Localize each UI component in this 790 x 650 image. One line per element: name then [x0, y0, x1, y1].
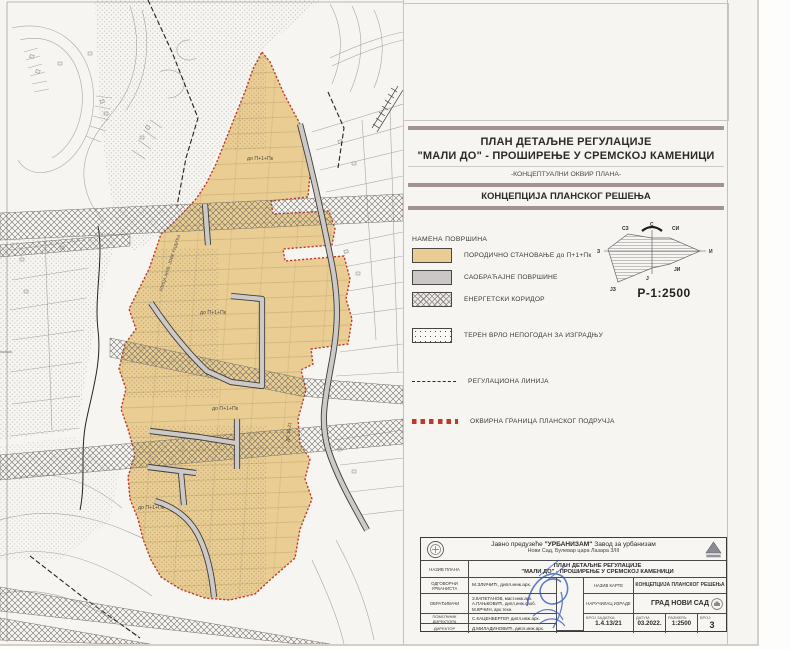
- empty-top-box: [403, 3, 729, 121]
- client-cell: ГРАД НОВИ САД: [634, 594, 726, 614]
- company-prefix: Јавно предузеће: [491, 541, 544, 548]
- sheet-number-cell: БРОЈ: 3: [698, 614, 726, 633]
- regulation-line-swatch: [412, 381, 456, 382]
- legend-item-traffic: САОБРАЋАЈНЕ ПОВРШИНЕ: [412, 270, 558, 285]
- compass-s: Ј: [646, 276, 649, 282]
- map-name-value: КОНЦЕПЦИЈА ПЛАНСКОГ РЕШЕЊА: [634, 578, 726, 594]
- housing-swatch: [412, 248, 452, 263]
- client-label: НАРУЧИЛАЦ ИЗРАДЕ: [584, 594, 634, 614]
- plan-name-label: НАЗИВ ПЛАНА: [421, 561, 469, 578]
- city-coat-of-arms-icon: [711, 598, 723, 610]
- director-name: Д.МИЛАДИНОВИЋ, дипл.инж.арх.: [469, 624, 557, 633]
- plan-title-line2: "МАЛИ ДО" - ПРОШИРЕЊЕ У СРЕМСКОЈ КАМЕНИЦ…: [408, 149, 724, 163]
- signature-column: [557, 578, 584, 631]
- company-stamp-icon: [426, 540, 445, 559]
- plan-map: до П+1+Пк до П+1+Пк до П+1+Пк до П+1+Пк …: [0, 0, 403, 644]
- urbanist-label: ОДГОВОРНИ УРБАНИСТА: [421, 578, 469, 594]
- compass-nw: СЗ: [622, 226, 629, 232]
- title-box: ПЛАН ДЕТАЉНЕ РЕГУЛАЦИЈЕ "МАЛИ ДО" - ПРОШ…: [408, 126, 724, 210]
- zone-label: до П+1+Пк: [247, 156, 274, 162]
- title-block-table: Јавно предузеће "УРБАНИЗАМ" Завод за урб…: [420, 537, 727, 632]
- map-name-label: НАЗИВ КАРТЕ: [584, 578, 634, 594]
- plan-subtitle: -КОНЦЕПТУАЛНИ ОКВИР ПЛАНА-: [408, 166, 724, 183]
- deputy-label: ПОМОЋНИК ДИРЕКТОРА: [421, 614, 469, 624]
- compass-w: З: [597, 249, 600, 255]
- urbanizam-logo-icon: [705, 541, 722, 559]
- legend-item-housing: ПОРОДИЧНО СТАНОВАЊЕ до П+1+Пк: [412, 248, 591, 263]
- compass-ne: СИ: [672, 226, 680, 232]
- legend-item-unsuitable: ТЕРЕН ВРЛО НЕПОГОДАН ЗА ИЗГРАДЊУ: [412, 328, 603, 343]
- plan-name-cell: ПЛАН ДЕТАЉНЕ РЕГУЛАЦИЈЕ "МАЛИ ДО" - ПРОШ…: [469, 561, 726, 578]
- company-name: "УРБАНИЗАМ": [545, 541, 593, 548]
- map-scale: Р-1:2500: [614, 286, 714, 300]
- plan-boundary-swatch: [412, 419, 458, 424]
- author-3: М.КРЧИН, арх.техн.: [472, 607, 556, 613]
- legend-item-energy: ЕНЕРГЕТСКИ КОРИДОР: [412, 292, 545, 307]
- energy-corridor-swatch: [412, 292, 452, 307]
- sheet-number: 3: [698, 620, 726, 630]
- plan-title: ПЛАН ДЕТАЉНЕ РЕГУЛАЦИЈЕ "МАЛИ ДО" - ПРОШ…: [408, 130, 724, 166]
- zone-label: до П+1+Пк: [200, 310, 227, 316]
- traffic-swatch: [412, 270, 452, 285]
- task-number: 1.4.13/21: [584, 620, 633, 627]
- zone-label: до П+1+Пк: [212, 406, 239, 412]
- unsuitable-terrain-swatch: [412, 328, 452, 343]
- company-suffix: Завод за урбанизам: [592, 541, 655, 548]
- compass-e: И: [709, 249, 713, 255]
- scale-cell: РАЗМЕРА: 1:2500: [666, 614, 698, 633]
- task-number-cell: БРОЈ ЗАДАТКА: 1.4.13/21: [584, 614, 634, 633]
- legend-item-boundary: ОКВИРНА ГРАНИЦА ПЛАНСКОГ ПОДРУЧЈА: [412, 418, 615, 425]
- scanned-plan-sheet: до П+1+Пк до П+1+Пк до П+1+Пк до П+1+Пк …: [0, 0, 759, 646]
- scale-value: 1:2500: [666, 620, 697, 627]
- compass-se: ЈИ: [674, 267, 681, 273]
- zone-label: до П+1+Пк: [138, 505, 165, 511]
- legend-heading: НАМЕНА ПОВРШИНА: [412, 236, 487, 243]
- deputy-name: С.КАЦЕНБЕРГЕР, дипл.инж.арх.: [469, 614, 557, 624]
- company-address: Нови Сад, Булевар цара Лазара 3/III: [421, 548, 726, 554]
- date-value: 03.2022.: [634, 620, 665, 627]
- urbanist-name: М.ЗЛИЧИЋ, дипл.инж.арх.: [469, 578, 557, 594]
- date-cell: ДАТУМ: 03.2022.: [634, 614, 666, 633]
- plan-title-line1: ПЛАН ДЕТАЉНЕ РЕГУЛАЦИЈЕ: [408, 135, 724, 149]
- authors-label: ОБРАЂИВАЧИ: [421, 594, 469, 614]
- company-header: Јавно предузеће "УРБАНИЗАМ" Завод за урб…: [421, 538, 726, 561]
- legend-item-regulation: РЕГУЛАЦИОНА ЛИНИЈА: [412, 378, 549, 385]
- compass-polygon: [608, 234, 700, 282]
- compass-n: С: [650, 222, 654, 228]
- director-label: ДИРЕКТОР: [421, 624, 469, 633]
- compass-rose: С СЗ СИ З И ЈЗ ЈИ Ј: [588, 202, 728, 294]
- authors-cell: З.КАПЕТАНОВ, маст.инж.арх. А.ПАЊКОВИЋ, д…: [469, 594, 557, 614]
